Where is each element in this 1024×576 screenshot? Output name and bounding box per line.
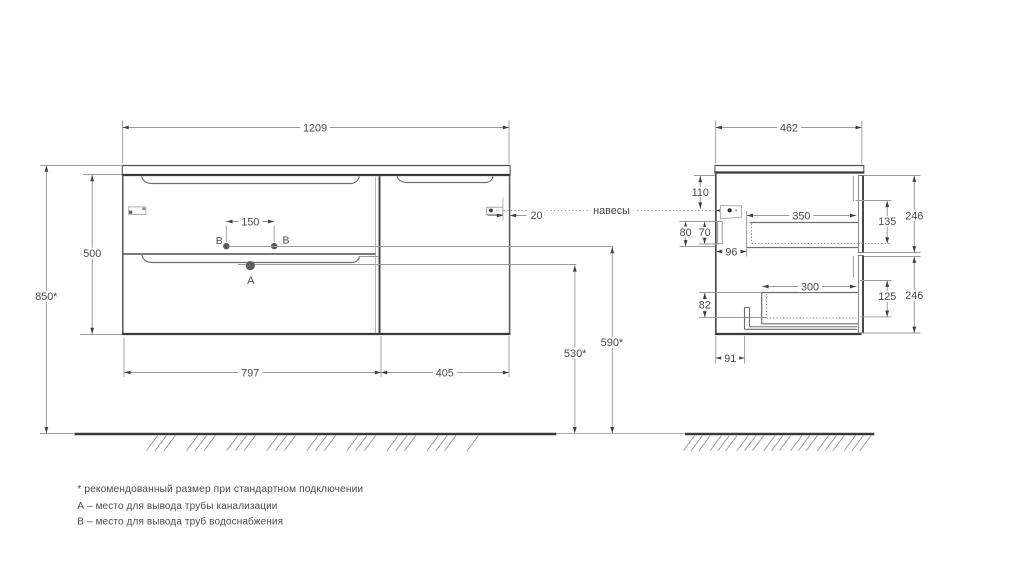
svg-text:246: 246 — [905, 210, 923, 222]
svg-text:A: A — [247, 275, 255, 287]
svg-text:А – место для вывода трубы кан: А – место для вывода трубы канализации — [77, 500, 277, 512]
svg-text:80: 80 — [680, 227, 692, 239]
svg-text:* рекомендованный размер при с: * рекомендованный размер при стандартном… — [77, 484, 363, 495]
svg-text:500: 500 — [83, 248, 101, 260]
svg-text:150: 150 — [241, 216, 259, 228]
svg-text:70: 70 — [699, 227, 711, 239]
svg-text:350: 350 — [792, 210, 810, 222]
svg-text:82: 82 — [699, 300, 711, 312]
svg-text:135: 135 — [878, 216, 896, 228]
svg-text:850*: 850* — [35, 291, 58, 303]
svg-text:В – место для вывода труб водо: В – место для вывода труб водоснабжения — [77, 516, 283, 528]
svg-text:110: 110 — [692, 187, 709, 199]
svg-text:96: 96 — [725, 246, 737, 258]
svg-text:797: 797 — [241, 367, 259, 379]
svg-text:300: 300 — [801, 281, 819, 293]
svg-text:91: 91 — [724, 353, 736, 365]
svg-text:590*: 590* — [601, 337, 624, 349]
svg-text:B: B — [282, 235, 289, 247]
svg-text:246: 246 — [905, 290, 923, 302]
svg-text:1209: 1209 — [303, 122, 327, 134]
svg-text:462: 462 — [780, 122, 798, 134]
svg-text:20: 20 — [530, 210, 542, 222]
svg-text:125: 125 — [878, 291, 896, 303]
svg-text:405: 405 — [436, 367, 454, 379]
svg-text:530*: 530* — [564, 348, 587, 360]
svg-text:B: B — [216, 235, 223, 247]
svg-text:навесы: навесы — [593, 205, 630, 217]
